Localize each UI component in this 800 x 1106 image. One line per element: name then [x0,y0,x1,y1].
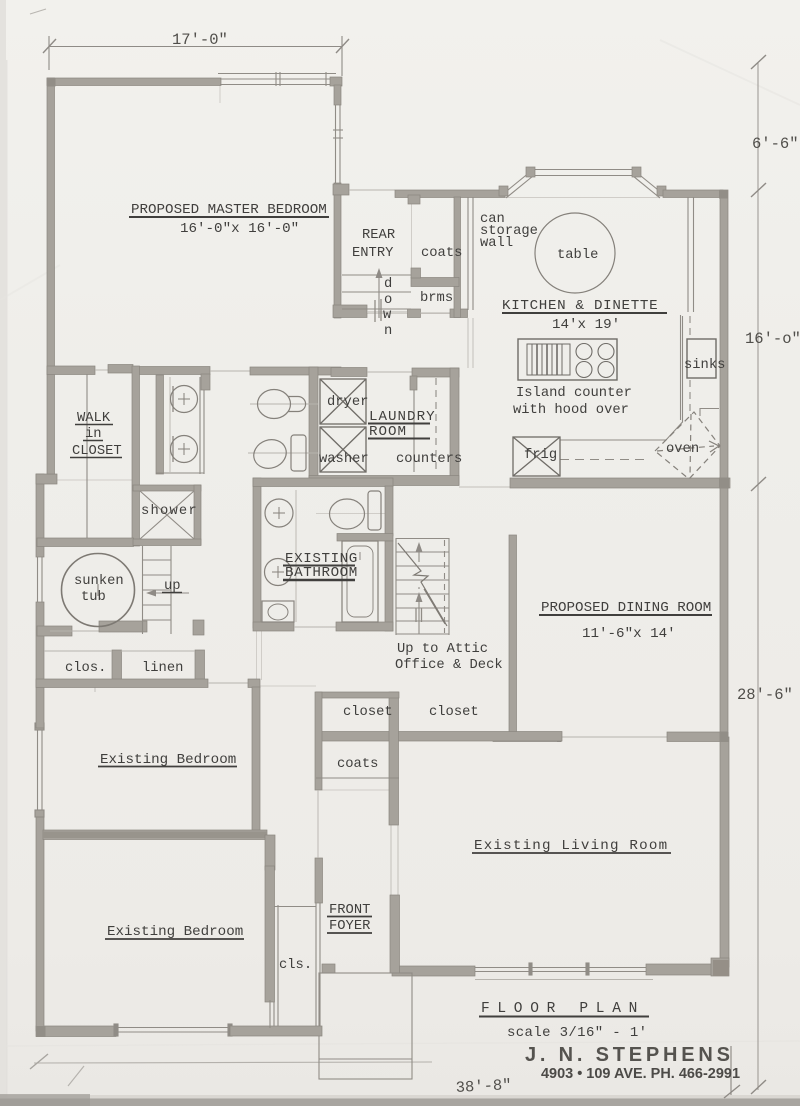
svg-text:scale 3/16" - 1': scale 3/16" - 1' [507,1025,647,1041]
svg-text:28'-6": 28'-6" [737,686,793,704]
svg-text:Existing Living Room: Existing Living Room [474,838,668,854]
svg-text:38'-8": 38'-8" [455,1076,512,1097]
svg-text:oven: oven [666,442,699,457]
svg-text:coats: coats [421,246,462,261]
svg-text:counters: counters [396,452,462,467]
svg-text:brms: brms [420,290,453,306]
svg-text:up: up [164,579,181,594]
svg-text:Existing Bedroom: Existing Bedroom [107,924,243,940]
svg-text:PROPOSED DINING ROOM: PROPOSED DINING ROOM [541,600,711,616]
svg-text:washer: washer [319,451,369,467]
svg-text:6'-6": 6'-6" [752,135,799,153]
svg-text:n: n [384,324,392,339]
svg-text:clos.: clos. [65,660,106,676]
svg-text:sunken: sunken [74,573,124,589]
svg-text:PROPOSED MASTER BEDROOM: PROPOSED MASTER BEDROOM [131,202,327,218]
svg-text:Island counter: Island counter [516,385,632,401]
svg-text:BATHROOM: BATHROOM [285,565,358,581]
svg-text:d: d [384,276,392,292]
svg-text:tub: tub [81,589,106,605]
svg-text:FOYER: FOYER [329,919,370,934]
svg-text:shower: shower [141,503,198,519]
svg-text:w: w [383,308,392,323]
svg-text:with hood over: with hood over [513,402,629,418]
svg-text:linen: linen [142,660,183,676]
svg-text:14'x 19': 14'x 19' [552,317,620,333]
svg-text:FLOOR PLAN: FLOOR PLAN [481,1001,645,1017]
svg-text:dryer: dryer [327,394,368,410]
svg-text:sinks: sinks [684,357,725,373]
svg-text:16'-o": 16'-o" [745,330,800,348]
svg-text:Up to Attic: Up to Attic [397,641,488,657]
svg-text:in: in [85,426,102,442]
svg-text:closet: closet [429,704,479,720]
svg-text:frig: frig [524,447,557,463]
svg-text:17'-0": 17'-0" [172,31,228,49]
svg-text:REAR: REAR [362,228,395,243]
svg-text:Office & Deck: Office & Deck [395,657,503,673]
svg-text:cls.: cls. [279,957,312,973]
svg-text:11'-6"x 14': 11'-6"x 14' [582,626,676,642]
svg-text:KITCHEN & DINETTE: KITCHEN & DINETTE [502,298,658,314]
svg-text:wall: wall [480,235,513,251]
svg-text:coats: coats [337,757,378,772]
svg-text:16'-0"x 16'-0": 16'-0"x 16'-0" [180,221,299,237]
svg-text:4903 • 109 AVE. PH. 466-2991: 4903 • 109 AVE. PH. 466-2991 [541,1066,740,1082]
svg-text:ENTRY: ENTRY [352,246,394,261]
svg-text:table: table [557,247,598,263]
svg-text:o: o [384,293,392,308]
svg-text:closet: closet [343,704,393,720]
